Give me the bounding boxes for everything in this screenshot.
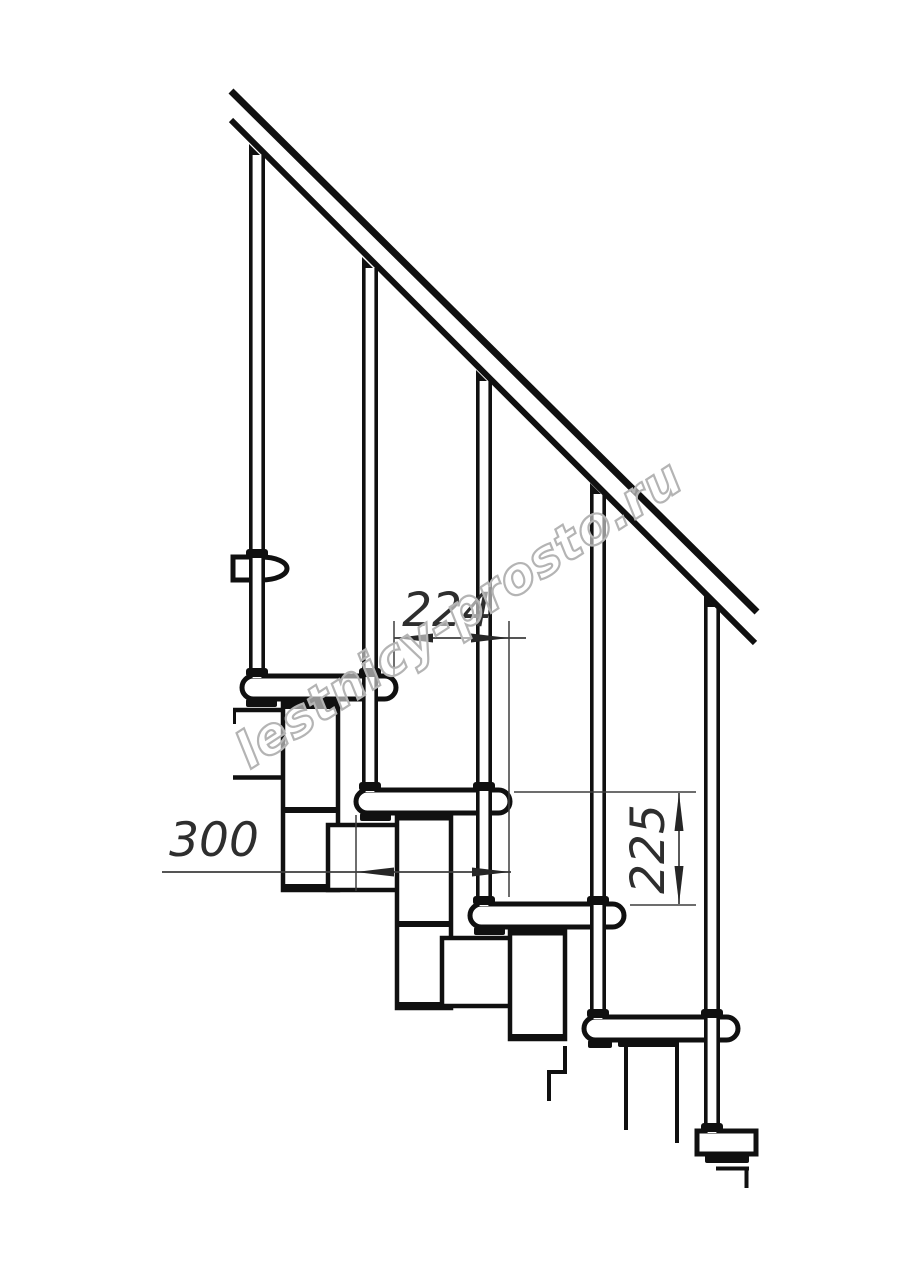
staircase-drawing: 224 300 225 lestnicy-prosto.ru xyxy=(0,0,914,1280)
module-m4 xyxy=(510,930,565,1039)
module-m5-partial xyxy=(549,1042,677,1143)
dimension-riser-height-label: 225 xyxy=(621,804,676,894)
dimension-tread-length-label: 300 xyxy=(169,813,259,868)
handrail-outer-line xyxy=(231,91,757,612)
module-c4 xyxy=(442,938,518,1006)
baluster-4 xyxy=(587,483,609,1019)
tread-6 xyxy=(697,1131,756,1154)
staircase-drawing-canvas: 224 300 225 lestnicy-prosto.ru xyxy=(0,0,914,1280)
baluster-5 xyxy=(701,596,723,1133)
module-t6-bracket xyxy=(716,1168,749,1188)
watermark-text: lestnicy-prosto.ru xyxy=(225,448,693,780)
baluster-2 xyxy=(359,257,381,792)
baluster-1 xyxy=(246,144,268,678)
module-c3 xyxy=(328,825,403,890)
